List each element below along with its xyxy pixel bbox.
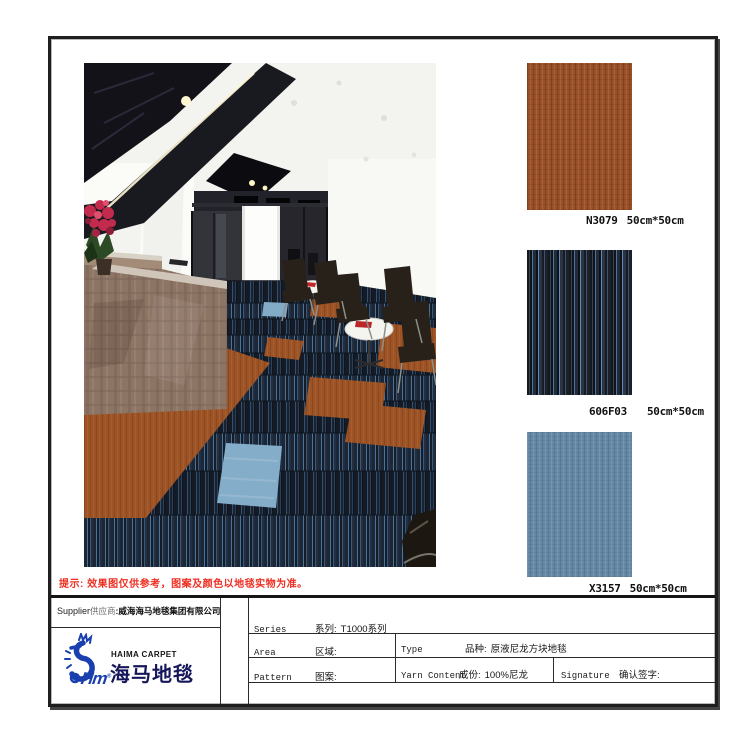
swatch-code: N3079 xyxy=(586,214,618,227)
swatch-size: 50cm*50cm xyxy=(627,214,684,227)
table-line xyxy=(395,633,396,682)
room-photo-art xyxy=(84,63,436,567)
table-line xyxy=(51,627,220,628)
supplier-label-en: Supplier xyxy=(57,606,90,616)
supplier-row: Supplier供应商:威海海马地毯集团有限公司 xyxy=(57,605,220,617)
yarn-content-row: Yarn Content成份:100%尼龙 xyxy=(401,667,528,681)
haima-logo: Hm® HAIMA CARPET 海马地毯 xyxy=(63,633,213,697)
signature-row: Signature确认签字: xyxy=(561,667,664,681)
swatch-label-606f03: 606F0350cm*50cm xyxy=(589,406,704,418)
type-value: 原液尼龙方块地毯 xyxy=(491,644,567,655)
yarn-value: 100%尼龙 xyxy=(485,670,528,681)
logo-monogram: Hm® xyxy=(80,669,112,689)
swatch-code: 606F03 xyxy=(589,405,627,418)
pattern-label-zh: 图案: xyxy=(315,672,337,683)
swatch-code: X3157 xyxy=(589,582,621,595)
room-photo xyxy=(84,63,436,567)
swatch-label-n3079: N307950cm*50cm xyxy=(586,215,684,227)
pattern-label-en: Pattern xyxy=(254,673,315,683)
area-label-zh: 区域: xyxy=(315,647,337,658)
series-row: Series系列:T1000系列 xyxy=(254,621,387,635)
carpet-swatch-n3079 xyxy=(527,63,632,210)
page-frame: N307950cm*50cm 606F0350cm*50cm X315750cm… xyxy=(48,36,718,707)
spec-sheet: N307950cm*50cm 606F0350cm*50cm X315750cm… xyxy=(0,0,750,750)
supplier-name: :威海海马地毯集团有限公司 xyxy=(116,606,221,616)
pattern-row: Pattern图案: xyxy=(254,669,341,683)
supplier-label-zh: 供应商 xyxy=(90,606,116,616)
type-label-zh: 品种: xyxy=(465,644,487,655)
signature-label-en: Signature xyxy=(561,671,619,681)
swatch-size: 50cm*50cm xyxy=(647,405,704,418)
carpet-swatch-x3157 xyxy=(527,432,632,577)
series-value: T1000系列 xyxy=(341,624,387,635)
disclaimer-note: 提示: 效果图仅供参考，图案及颜色以地毯实物为准。 xyxy=(59,575,308,590)
table-top-border xyxy=(51,595,715,598)
area-row: Area区域: xyxy=(254,644,341,658)
swatch-size: 50cm*50cm xyxy=(630,582,687,595)
swatch-label-x3157: X315750cm*50cm xyxy=(589,583,687,595)
signature-label-zh: 确认签字: xyxy=(619,670,660,681)
carpet-swatch-606f03 xyxy=(527,250,632,395)
series-label-en: Series xyxy=(254,625,315,635)
series-label-zh: 系列: xyxy=(315,624,337,635)
table-line xyxy=(248,598,249,704)
type-label-en: Type xyxy=(401,645,465,655)
logo-brand-zh: 海马地毯 xyxy=(110,658,194,687)
type-row: Type品种:原液尼龙方块地毯 xyxy=(401,641,567,655)
area-label-en: Area xyxy=(254,648,315,658)
yarn-label-en: Yarn Content xyxy=(401,671,459,681)
yarn-label-zh: 成份: xyxy=(459,670,481,681)
table-line xyxy=(553,657,554,682)
